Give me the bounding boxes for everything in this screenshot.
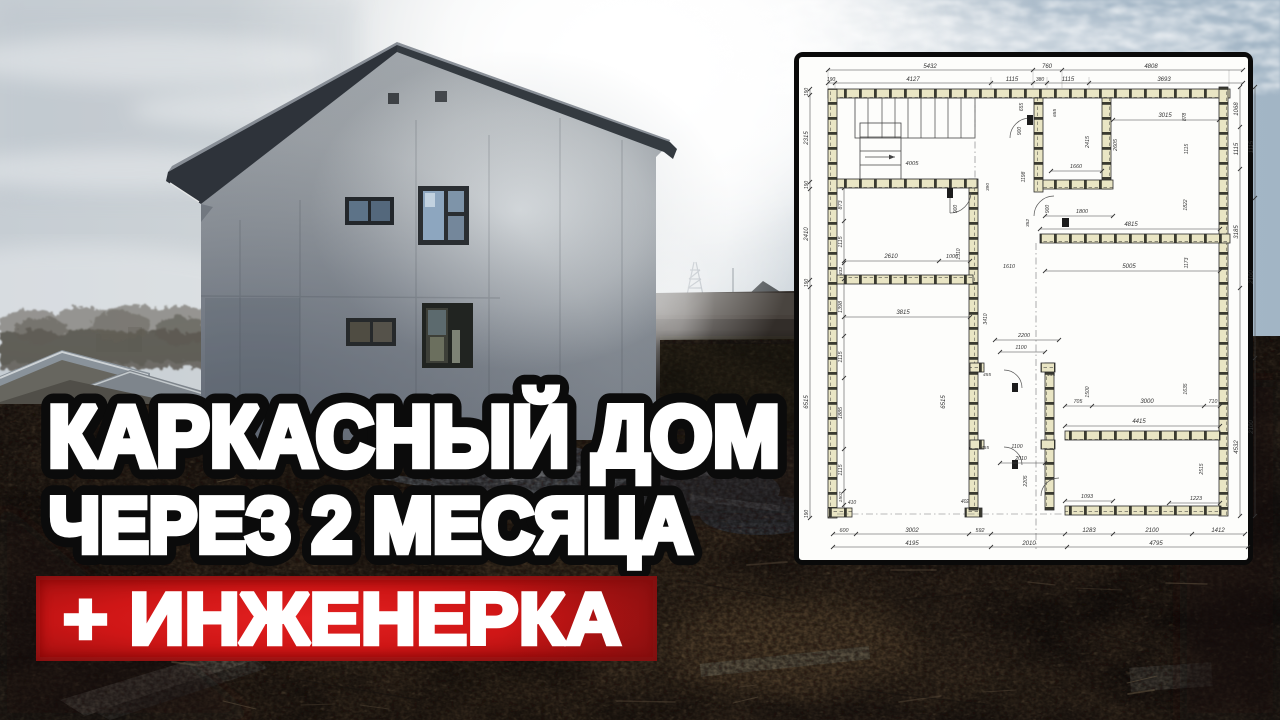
svg-text:402: 402 [961, 499, 970, 505]
svg-text:4795: 4795 [1149, 541, 1163, 547]
svg-text:900: 900 [1045, 205, 1051, 214]
svg-text:190: 190 [804, 279, 810, 288]
svg-text:190: 190 [804, 510, 810, 519]
svg-text:1610: 1610 [1003, 264, 1015, 270]
svg-text:6515: 6515 [804, 395, 810, 409]
svg-text:1635: 1635 [1183, 383, 1189, 394]
svg-text:380: 380 [1036, 77, 1045, 83]
svg-text:4532: 4532 [1234, 440, 1240, 454]
svg-text:1173: 1173 [1184, 257, 1190, 268]
svg-text:4815: 4815 [1124, 222, 1138, 228]
svg-text:3015: 3015 [1158, 113, 1172, 119]
svg-text:2100: 2100 [1249, 270, 1255, 285]
svg-text:6515: 6515 [941, 395, 947, 409]
svg-text:2010: 2010 [1021, 541, 1036, 547]
svg-text:3002: 3002 [905, 528, 919, 534]
svg-text:3410: 3410 [983, 313, 989, 324]
svg-text:1115: 1115 [838, 350, 844, 362]
svg-text:592: 592 [976, 528, 985, 534]
svg-text:352: 352 [1025, 219, 1031, 227]
svg-text:1822: 1822 [1183, 199, 1189, 210]
svg-text:1500: 1500 [1085, 386, 1091, 397]
svg-text:3000: 3000 [1140, 399, 1154, 405]
svg-text:5005: 5005 [1122, 264, 1136, 270]
svg-text:3815: 3815 [896, 310, 910, 316]
svg-text:410: 410 [848, 500, 857, 506]
svg-text:1800: 1800 [1076, 209, 1088, 215]
svg-text:1412: 1412 [1211, 528, 1225, 534]
svg-text:710: 710 [1209, 399, 1218, 405]
svg-text:2315: 2315 [804, 131, 810, 146]
svg-text:1100: 1100 [1011, 444, 1022, 450]
svg-text:3693: 3693 [1157, 77, 1171, 83]
svg-text:2415: 2415 [1085, 135, 1091, 149]
svg-text:4415: 4415 [1132, 419, 1146, 425]
svg-text:900: 900 [1017, 127, 1023, 136]
svg-text:2605: 2605 [1113, 138, 1119, 152]
svg-text:4005: 4005 [906, 161, 920, 167]
svg-text:1502: 1502 [838, 491, 844, 502]
svg-text:3185: 3185 [1234, 225, 1240, 239]
svg-text:2410: 2410 [804, 227, 810, 242]
svg-text:455: 455 [983, 372, 991, 378]
svg-text:5432: 5432 [923, 64, 937, 70]
svg-text:1283: 1283 [1082, 528, 1096, 534]
svg-text:2515: 2515 [1199, 463, 1205, 475]
svg-text:455: 455 [1047, 372, 1055, 378]
svg-text:4195: 4195 [905, 541, 919, 547]
svg-text:1115: 1115 [838, 235, 844, 247]
svg-text:1115: 1115 [1006, 77, 1019, 83]
svg-text:705: 705 [1074, 399, 1083, 405]
svg-text:+ ИНЖЕНЕРКА: + ИНЖЕНЕРКА [63, 579, 621, 660]
svg-text:1100: 1100 [1015, 345, 1026, 351]
svg-text:1885: 1885 [838, 406, 844, 419]
svg-text:1198: 1198 [1021, 171, 1027, 182]
svg-text:2205: 2205 [1023, 475, 1029, 487]
svg-text:390: 390 [985, 183, 991, 191]
svg-text:1115: 1115 [1184, 144, 1190, 155]
svg-text:760: 760 [1042, 64, 1053, 70]
svg-text:873: 873 [838, 201, 844, 210]
svg-text:878: 878 [1182, 113, 1188, 122]
svg-text:4127: 4127 [906, 77, 920, 83]
svg-text:455: 455 [981, 445, 989, 451]
svg-text:1115: 1115 [838, 463, 844, 475]
svg-text:600: 600 [840, 528, 849, 534]
svg-text:655: 655 [1052, 109, 1058, 117]
svg-text:1115: 1115 [1249, 140, 1255, 153]
svg-text:2100: 2100 [1144, 528, 1159, 534]
svg-text:432: 432 [838, 267, 844, 275]
svg-text:1093: 1093 [1081, 494, 1093, 500]
svg-text:190: 190 [804, 88, 810, 97]
svg-text:1115: 1115 [1062, 77, 1075, 83]
svg-text:КАРКАСНЫЙ ДОМ: КАРКАСНЫЙ ДОМ [48, 388, 780, 485]
svg-text:190: 190 [804, 181, 810, 190]
svg-text:ЧЕРЕЗ 2 МЕСЯЦА: ЧЕРЕЗ 2 МЕСЯЦА [49, 481, 692, 569]
svg-text:655: 655 [1019, 103, 1025, 112]
svg-text:1310: 1310 [956, 248, 962, 259]
svg-text:2200: 2200 [1017, 333, 1030, 339]
svg-text:1398: 1398 [838, 301, 844, 313]
svg-text:2610: 2610 [883, 254, 898, 260]
svg-text:900: 900 [953, 205, 959, 214]
svg-text:1660: 1660 [1070, 164, 1082, 170]
svg-text:190: 190 [827, 77, 836, 83]
svg-text:2100: 2100 [1249, 420, 1255, 435]
svg-text:1223: 1223 [1190, 496, 1202, 502]
svg-text:2010: 2010 [1014, 456, 1027, 462]
svg-text:1115: 1115 [1234, 142, 1240, 155]
svg-text:4808: 4808 [1144, 64, 1158, 70]
svg-text:1068: 1068 [1234, 102, 1240, 116]
